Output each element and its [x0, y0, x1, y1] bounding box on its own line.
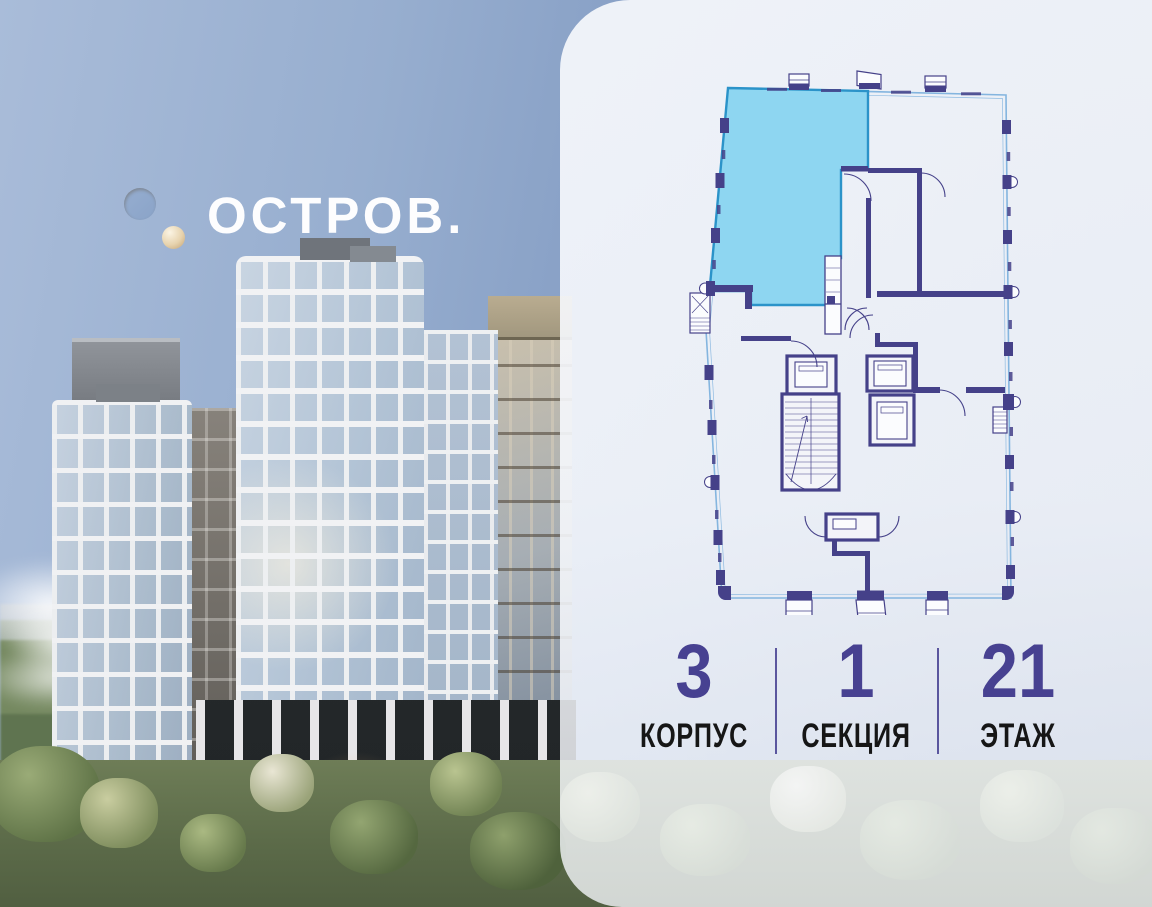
brand-name: ОСТРОВ. [207, 186, 465, 245]
tree [180, 814, 246, 872]
tree [430, 752, 502, 816]
tree [80, 778, 158, 848]
tree-blossom [250, 754, 314, 812]
info-floor: 21 ЭТАЖ [937, 640, 1099, 760]
stair-elevator-core [782, 356, 914, 540]
selected-apartment-highlight[interactable] [710, 88, 869, 305]
section-label: СЕКЦИЯ [796, 717, 916, 756]
building-label: КОРПУС [634, 717, 754, 756]
info-building: 3 КОРПУС [613, 640, 775, 760]
tree [470, 812, 566, 890]
divider [775, 648, 777, 754]
tree [330, 800, 418, 874]
logo-torus-hole [124, 188, 156, 220]
roof-box [350, 246, 396, 262]
info-section: 1 СЕКЦИЯ [775, 640, 937, 760]
divider [937, 648, 939, 754]
staircase [782, 394, 839, 490]
unit-info-strip: 3 КОРПУС 1 СЕКЦИЯ 21 ЭТАЖ [613, 640, 1099, 760]
floor-number: 21 [947, 640, 1090, 705]
roof-box [96, 384, 160, 402]
floor-label: ЭТАЖ [958, 717, 1078, 756]
building-number: 3 [623, 640, 766, 705]
promo-card: ОСТРОВ. [0, 0, 1152, 907]
floor-plan [675, 70, 1035, 615]
section-number: 1 [785, 640, 928, 705]
logo-dot-icon [162, 226, 185, 249]
